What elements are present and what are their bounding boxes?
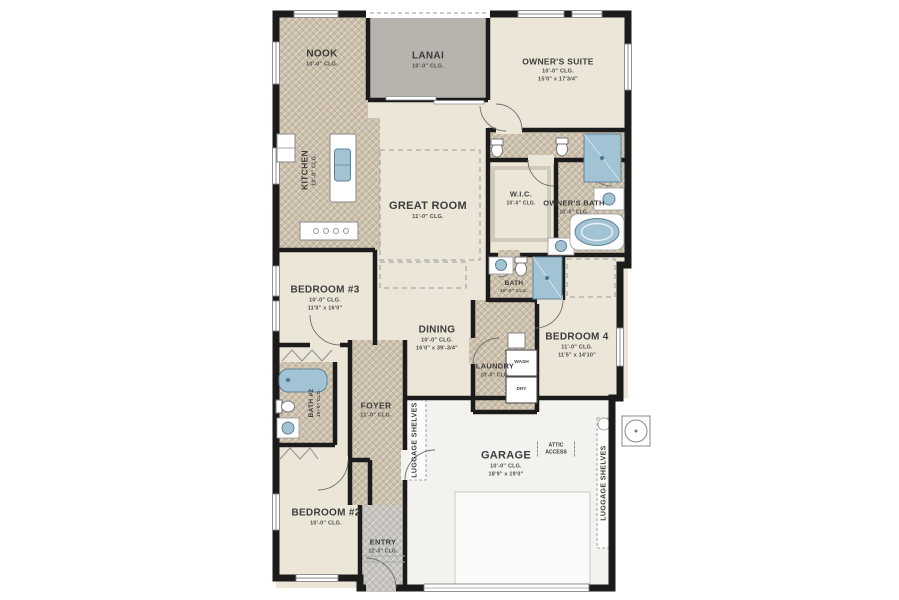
utility-cabinet — [508, 333, 525, 348]
water-heater-icon — [598, 418, 610, 430]
washer-icon — [506, 350, 537, 376]
foyer-floor — [348, 340, 407, 505]
garage-pad — [455, 492, 590, 584]
sink-icon-2 — [556, 241, 567, 252]
entry-floor — [360, 505, 407, 588]
sink-icon — [603, 193, 615, 205]
toilet-icon — [516, 262, 527, 276]
floor-plan: NOOK 10'-0" CLG. LANAI 10'-0" CLG. OWNER… — [0, 0, 899, 600]
sink-icon — [496, 260, 507, 271]
nook-floor — [276, 14, 368, 118]
dryer-icon — [506, 377, 537, 403]
toilet-icon — [282, 401, 295, 412]
ac-pad — [622, 416, 650, 446]
lanai-floor — [368, 14, 488, 100]
sink-icon — [282, 422, 294, 434]
floor-plan-graphic — [0, 0, 899, 600]
